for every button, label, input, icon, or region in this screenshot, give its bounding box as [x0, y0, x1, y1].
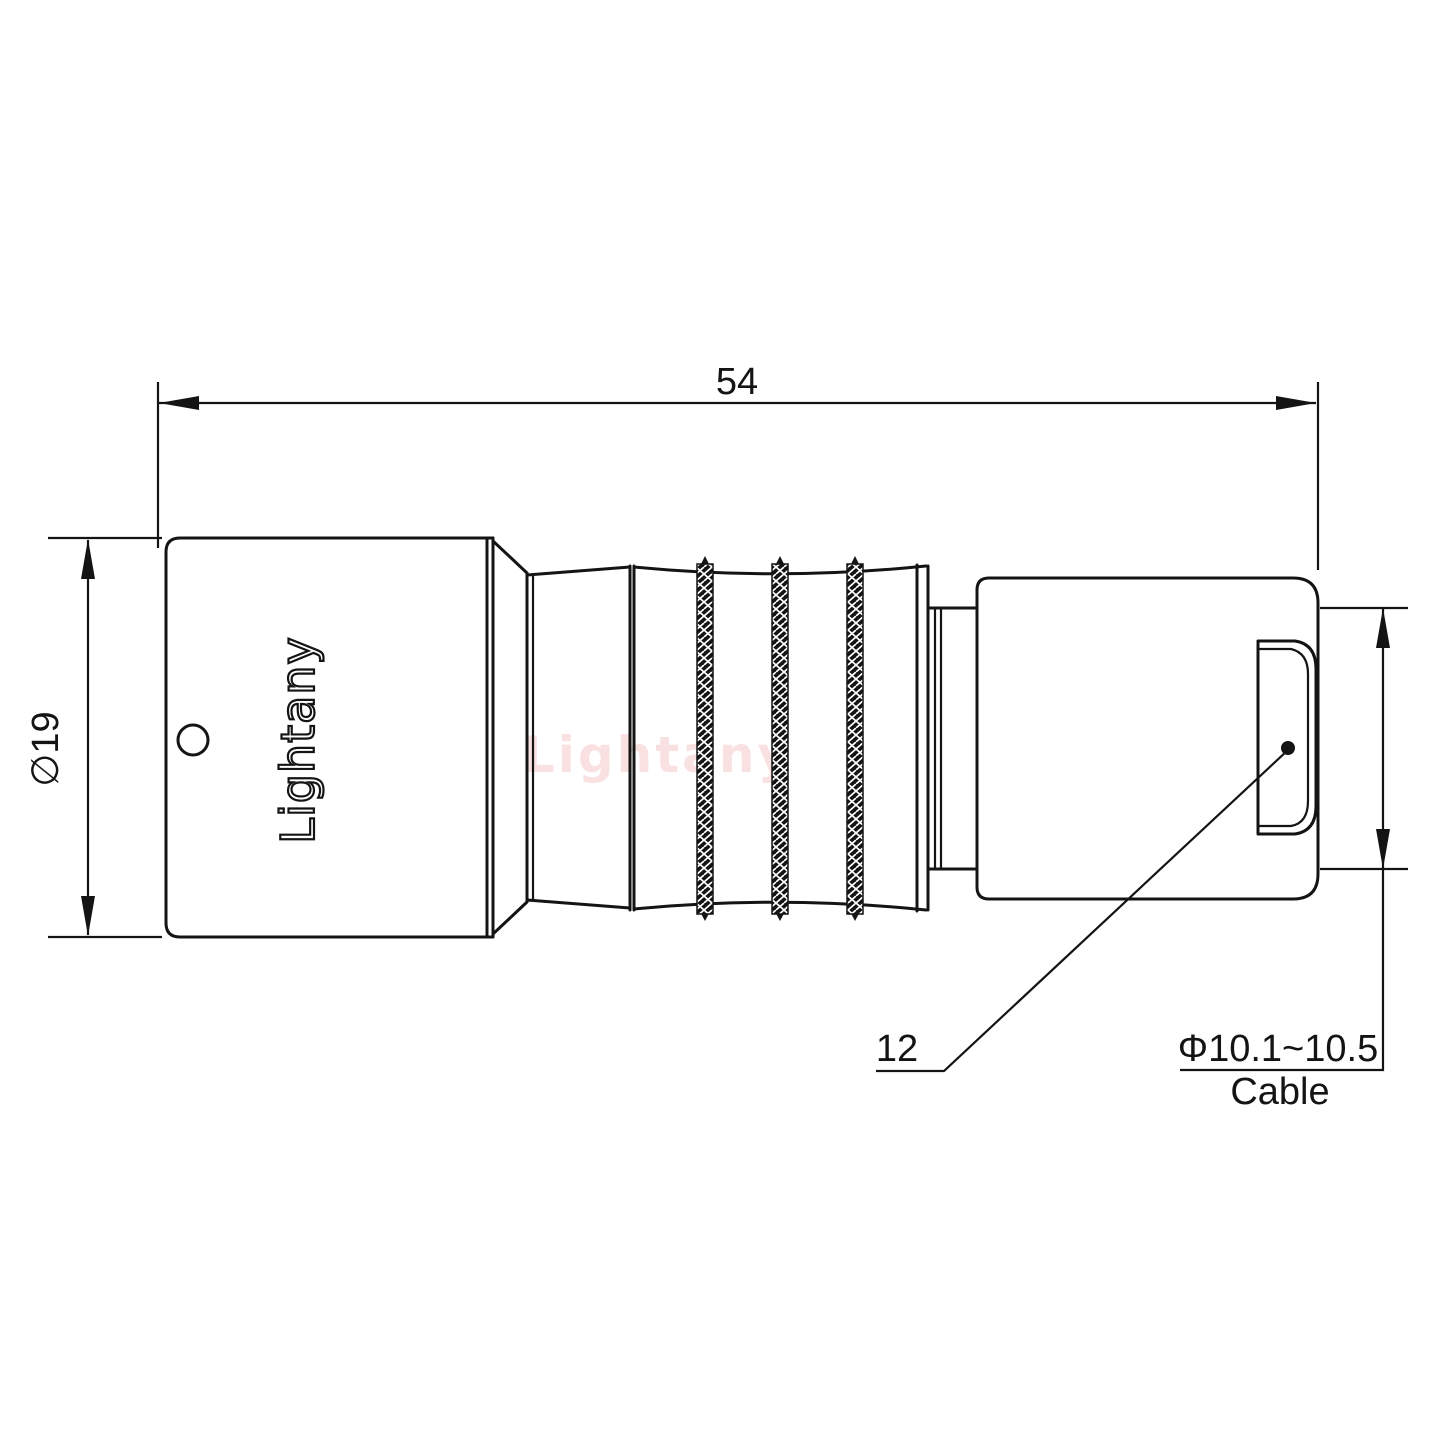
label-rear-part: 12: [876, 741, 1295, 1071]
rear-body-outline: [977, 578, 1318, 899]
rear-part-label: 12: [876, 1028, 918, 1070]
knurl-band-3: [847, 556, 863, 921]
leader-dot-icon: [1281, 741, 1295, 755]
cable-diameter-label: Φ10.1~10.5: [1178, 1028, 1378, 1070]
arrow-right-icon: [1276, 396, 1316, 410]
dimension-label-body-diameter: ∅19: [25, 711, 67, 786]
knurl-band-2: [772, 556, 788, 921]
cable-bushing-inner: [1258, 649, 1308, 826]
cable-name-label: Cable: [1230, 1071, 1329, 1113]
technical-drawing-canvas: Lightany: [0, 0, 1440, 1440]
arrow-down-icon: [1376, 829, 1390, 869]
grip-right-edge: [917, 565, 928, 911]
dimension-label-overall-length: 54: [716, 361, 758, 403]
main-body-outline: [166, 538, 493, 937]
knurl-band-1: [697, 556, 713, 921]
dimension-cable: Φ10.1~10.5 Cable: [1178, 608, 1408, 1113]
arrow-down-icon: [81, 896, 95, 936]
body-engraving-text: Lightany: [271, 636, 325, 843]
watermark-text: Lightany: [523, 726, 793, 784]
arrow-up-icon: [1376, 608, 1390, 648]
dimension-body-diameter: ∅19: [25, 538, 162, 937]
arrow-up-icon: [81, 539, 95, 579]
body-hole: [178, 725, 208, 755]
taper-edges: [493, 541, 527, 934]
connector-drawing: Lightany: [0, 0, 1440, 1440]
leader-line: [876, 750, 1288, 1071]
main-body-right-edge: [487, 538, 493, 937]
neck-inner-lines: [935, 608, 941, 869]
arrow-left-icon: [159, 396, 199, 410]
